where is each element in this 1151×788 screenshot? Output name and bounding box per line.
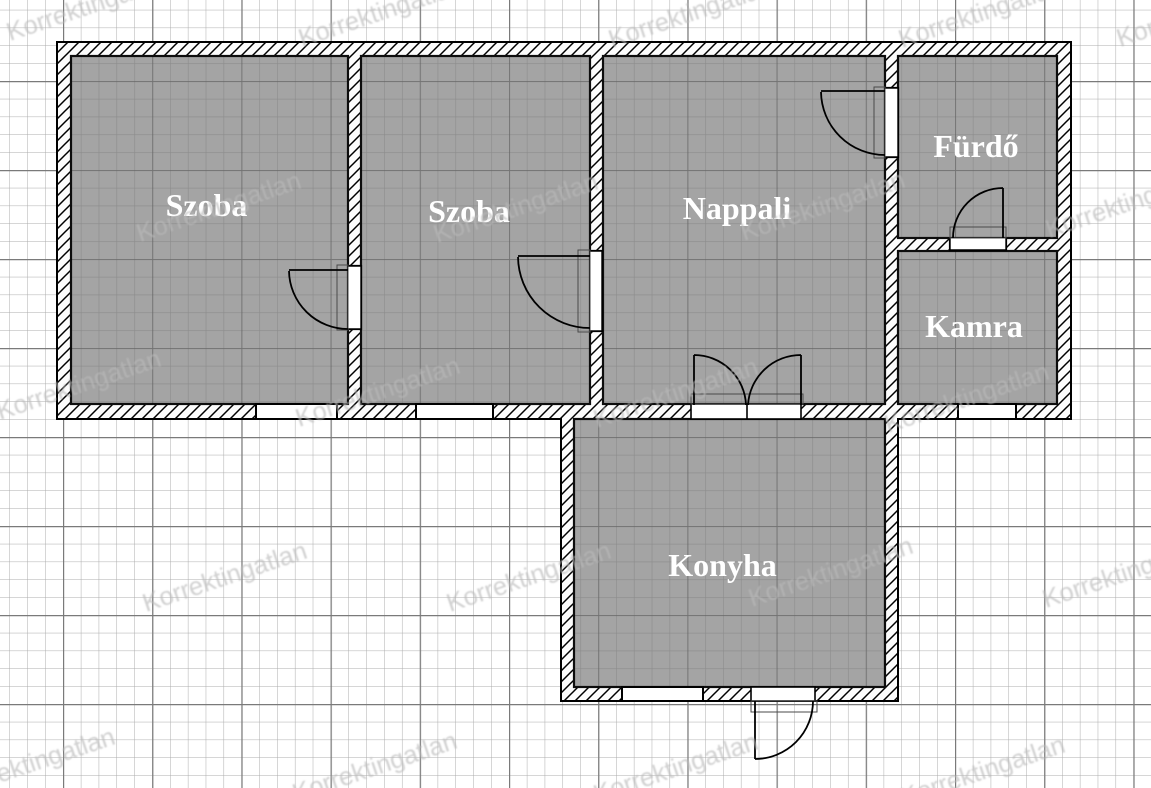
svg-text:Fürdő: Fürdő xyxy=(933,128,1018,164)
svg-text:Konyha: Konyha xyxy=(668,547,776,583)
svg-text:Kamra: Kamra xyxy=(925,308,1023,344)
